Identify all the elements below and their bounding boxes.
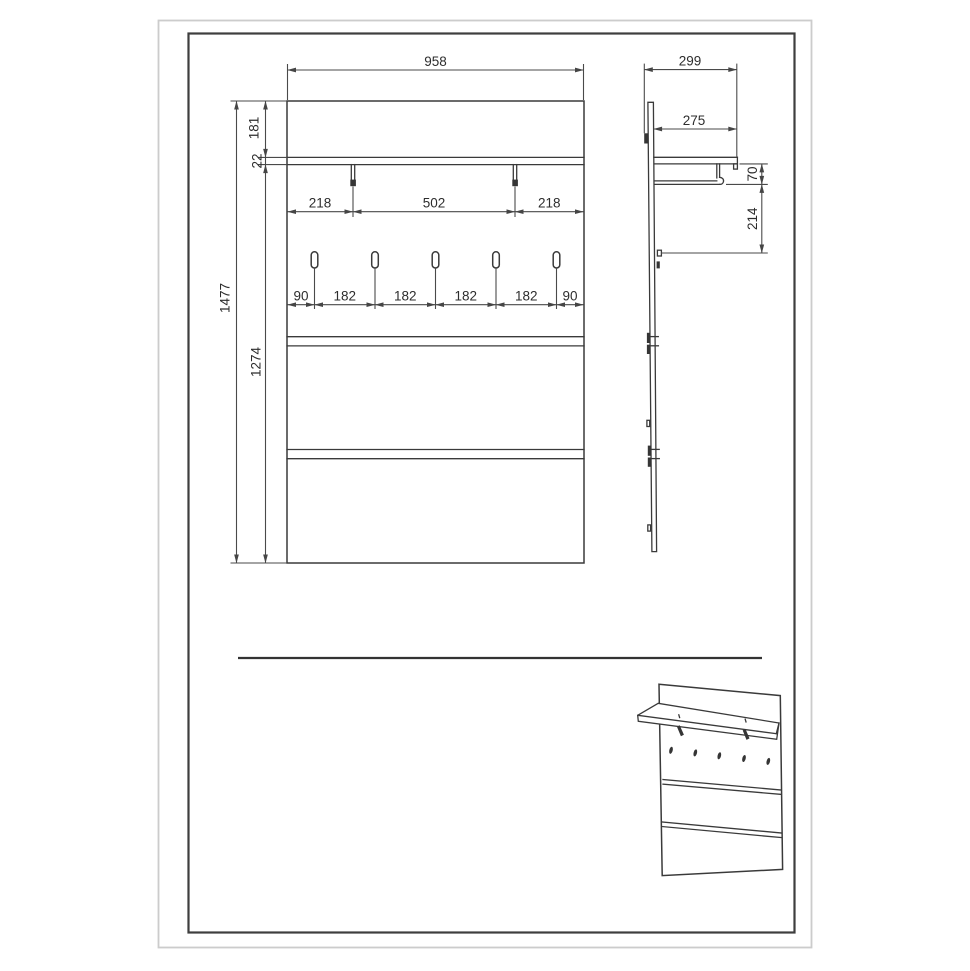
dim-label-hook-drop: 214 [745,207,760,230]
dim-label-overall-width: 958 [424,54,447,69]
wall-bracket [644,133,648,143]
dim-label: 182 [334,289,357,304]
side-view: 299 275 70 214 [644,54,768,552]
dim-label: 502 [423,196,446,211]
coat-hooks [311,252,560,268]
dim-label-shelf-depth: 275 [683,113,706,128]
dim-label-top-offset: 181 [247,117,262,140]
dim-label: 182 [515,289,538,304]
shelf-bracket-right [512,165,518,187]
dim-label: 182 [394,289,417,304]
dim-label-overall-height: 1477 [218,283,233,313]
hook [493,252,500,268]
hook [432,252,439,268]
dim-label-rail-drop: 70 [745,166,760,181]
panel-profile [648,102,657,551]
screw-mark [745,719,746,722]
front-panel [287,101,584,563]
perspective-view [638,684,783,875]
mounting-knob [647,420,650,426]
dim-label: 218 [538,196,561,211]
hook [372,252,379,268]
dim-label-overall-depth: 299 [679,54,702,69]
dim-label: 90 [562,289,577,304]
hook [553,252,560,268]
drawing-page: 958 218 502 218 90 182 182 182 [0,0,970,971]
dim-label-shelf-thickness: 22 [250,153,265,168]
shelf-bracket-left [350,165,356,187]
shelf-edge-lip [734,164,738,169]
rail-hook-curl [720,177,724,184]
dim-label: 90 [293,289,308,304]
hook-profile [657,250,662,268]
side-panel [644,102,737,551]
mounting-knob [648,525,651,531]
front-view: 958 218 502 218 90 182 182 182 [218,54,585,563]
technical-drawing-canvas: 958 218 502 218 90 182 182 182 [0,0,970,971]
screw-mark [679,715,680,718]
side-dimensions: 299 275 70 214 [644,54,768,253]
panel-outline [287,101,584,563]
dim-label: 182 [455,289,478,304]
front-dimensions: 958 218 502 218 90 182 182 182 [218,54,584,563]
hanging-rail-profile [654,164,723,185]
shelf-profile [654,157,738,169]
dim-label-lower-height: 1274 [249,346,264,377]
dim-label: 218 [309,196,332,211]
hook [311,252,318,268]
